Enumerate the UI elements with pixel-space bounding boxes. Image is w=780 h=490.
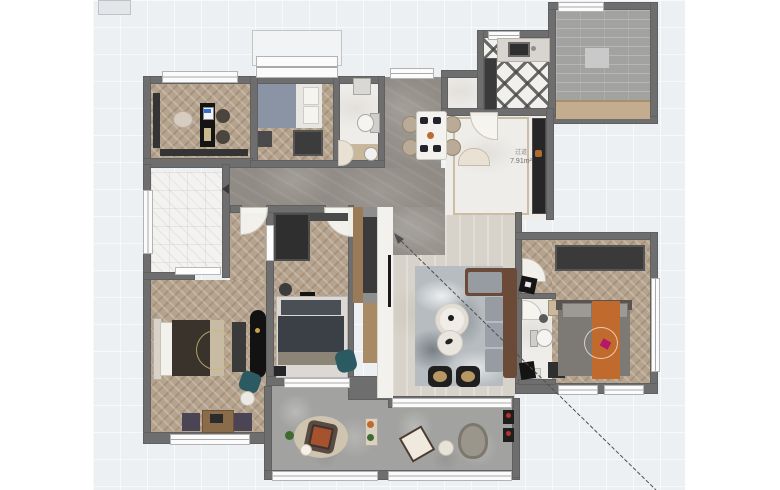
terrace-planter-b-flower bbox=[506, 431, 511, 436]
wall-bath-east-bottom bbox=[518, 379, 556, 385]
master-ceiling-fan-icon bbox=[196, 330, 236, 370]
tv-wall-wood bbox=[353, 207, 363, 303]
master-rug-b bbox=[234, 413, 252, 431]
master-foot-bench bbox=[232, 322, 246, 372]
study-chair-a bbox=[216, 109, 230, 123]
living-terrace-slider bbox=[392, 398, 512, 408]
foyer-room-name: 过道 bbox=[498, 150, 544, 158]
study-monitor-screen bbox=[204, 109, 211, 113]
sofa-seat-b bbox=[485, 323, 503, 347]
terrace-plant-c bbox=[367, 434, 374, 441]
bath-east-toilet-bowl bbox=[536, 329, 553, 347]
cloakroom-window bbox=[143, 190, 153, 254]
bath-north-round-sink bbox=[364, 147, 378, 161]
foyer-area-label: 过道 7.91m² bbox=[498, 150, 544, 166]
wall-east-bedroom-top bbox=[515, 232, 658, 240]
east-entry-mat-b bbox=[519, 361, 536, 380]
study-lounge-chair bbox=[173, 111, 193, 128]
east-bed-pillow-a bbox=[562, 303, 592, 318]
bedroom-north-pillow-a bbox=[303, 87, 319, 105]
east-bedroom-window-a bbox=[558, 385, 598, 395]
dining-centerpiece bbox=[427, 132, 434, 139]
terrace-egg-dish bbox=[300, 444, 312, 456]
design-canvas[interactable]: 过道 7.91m² bbox=[0, 0, 780, 490]
bath-north-sink bbox=[353, 78, 371, 95]
wall-study-bedroom bbox=[250, 76, 258, 166]
bath-north-toilet-bowl bbox=[357, 114, 374, 132]
wall-foyer-right bbox=[546, 108, 554, 220]
middle-chair-round bbox=[279, 283, 292, 296]
wall-hall-top bbox=[250, 160, 385, 168]
kitchen-counter-left bbox=[484, 58, 497, 110]
wall-hall-bottom-b bbox=[266, 205, 326, 213]
dining-place-c bbox=[420, 145, 428, 152]
sofa-chaise-cushion bbox=[468, 272, 502, 293]
master-dresser-mirror bbox=[210, 414, 223, 423]
wall-balcony-right bbox=[650, 2, 658, 120]
study-cabinet-left bbox=[153, 93, 160, 148]
tv-wall-cabinet bbox=[363, 207, 377, 303]
terrace-egg-chair bbox=[458, 423, 488, 459]
bedroom-north-wardrobe bbox=[293, 130, 323, 156]
cloakroom-floor bbox=[151, 172, 222, 274]
laundry-balcony-window bbox=[558, 2, 604, 12]
wall-terrace-left bbox=[264, 386, 272, 480]
kitchen-sink bbox=[508, 42, 530, 57]
cloakroom-door-leaf bbox=[175, 267, 221, 275]
coffee-table-large-decor bbox=[448, 315, 454, 321]
corridor-floor bbox=[392, 207, 445, 257]
middle-bed-pillows bbox=[281, 300, 341, 315]
middle-bedroom-window bbox=[284, 378, 350, 388]
dining-place-d bbox=[433, 145, 441, 152]
master-rug-a bbox=[182, 413, 200, 431]
study-window bbox=[162, 71, 238, 83]
sofa-seat-a bbox=[485, 297, 503, 321]
wall-study-bottom bbox=[143, 158, 253, 168]
terrace-plant-a bbox=[285, 431, 294, 440]
tv-wall-lower-cabinet bbox=[363, 303, 377, 363]
dining-place-b bbox=[433, 117, 441, 124]
master-chaise-decor bbox=[255, 328, 260, 333]
kitchen-faucet bbox=[531, 46, 536, 51]
floorplan[interactable]: 过道 7.91m² bbox=[0, 0, 780, 490]
study-chair-b bbox=[216, 130, 230, 144]
wall-bath-east-top bbox=[518, 293, 556, 299]
bath-east-drain bbox=[539, 314, 548, 323]
east-wardrobe bbox=[555, 245, 645, 271]
dining-window bbox=[390, 68, 434, 79]
terrace-side-table bbox=[438, 440, 454, 456]
bedroom-north-bay-window bbox=[256, 56, 338, 78]
terrace-lounge-cushion bbox=[310, 426, 331, 447]
laundry-bench bbox=[556, 100, 650, 119]
bedroom-north-pillow-b bbox=[303, 106, 319, 124]
sofa-seat-c bbox=[485, 349, 503, 372]
middle-tv-shelf bbox=[310, 213, 348, 221]
wall-cloakroom-east bbox=[222, 164, 230, 278]
bedroom-north-dresser bbox=[258, 131, 272, 147]
tv-screen bbox=[388, 255, 391, 307]
study-cabinet-bottom bbox=[160, 149, 248, 156]
terrace-planter-a-flower bbox=[506, 413, 511, 418]
dining-place-a bbox=[420, 117, 428, 124]
master-side-table bbox=[240, 391, 255, 406]
armchair-a-cushion bbox=[433, 371, 447, 382]
middle-bedroom-door-leaf bbox=[266, 225, 274, 261]
terrace-window-a bbox=[272, 471, 378, 481]
master-window bbox=[170, 434, 250, 445]
middle-wardrobe bbox=[274, 213, 310, 261]
armchair-b-cushion bbox=[461, 371, 475, 382]
door-swing-icon bbox=[222, 184, 229, 194]
east-bedroom-window-b bbox=[604, 385, 644, 395]
study-books bbox=[204, 128, 211, 141]
hallway-floor bbox=[230, 168, 445, 207]
laundry-floor-inset bbox=[585, 48, 609, 68]
terrace-plant-b bbox=[367, 421, 374, 428]
sofa-back bbox=[503, 268, 517, 378]
east-bedroom-side-window bbox=[651, 278, 660, 372]
foyer-room-area: 7.91m² bbox=[498, 158, 544, 167]
middle-stool bbox=[274, 366, 286, 376]
wall-kitchen-left bbox=[477, 30, 484, 116]
master-chaise bbox=[250, 310, 266, 378]
east-entry-mat-a-dot bbox=[525, 281, 532, 287]
terrace-window-b bbox=[388, 471, 512, 481]
